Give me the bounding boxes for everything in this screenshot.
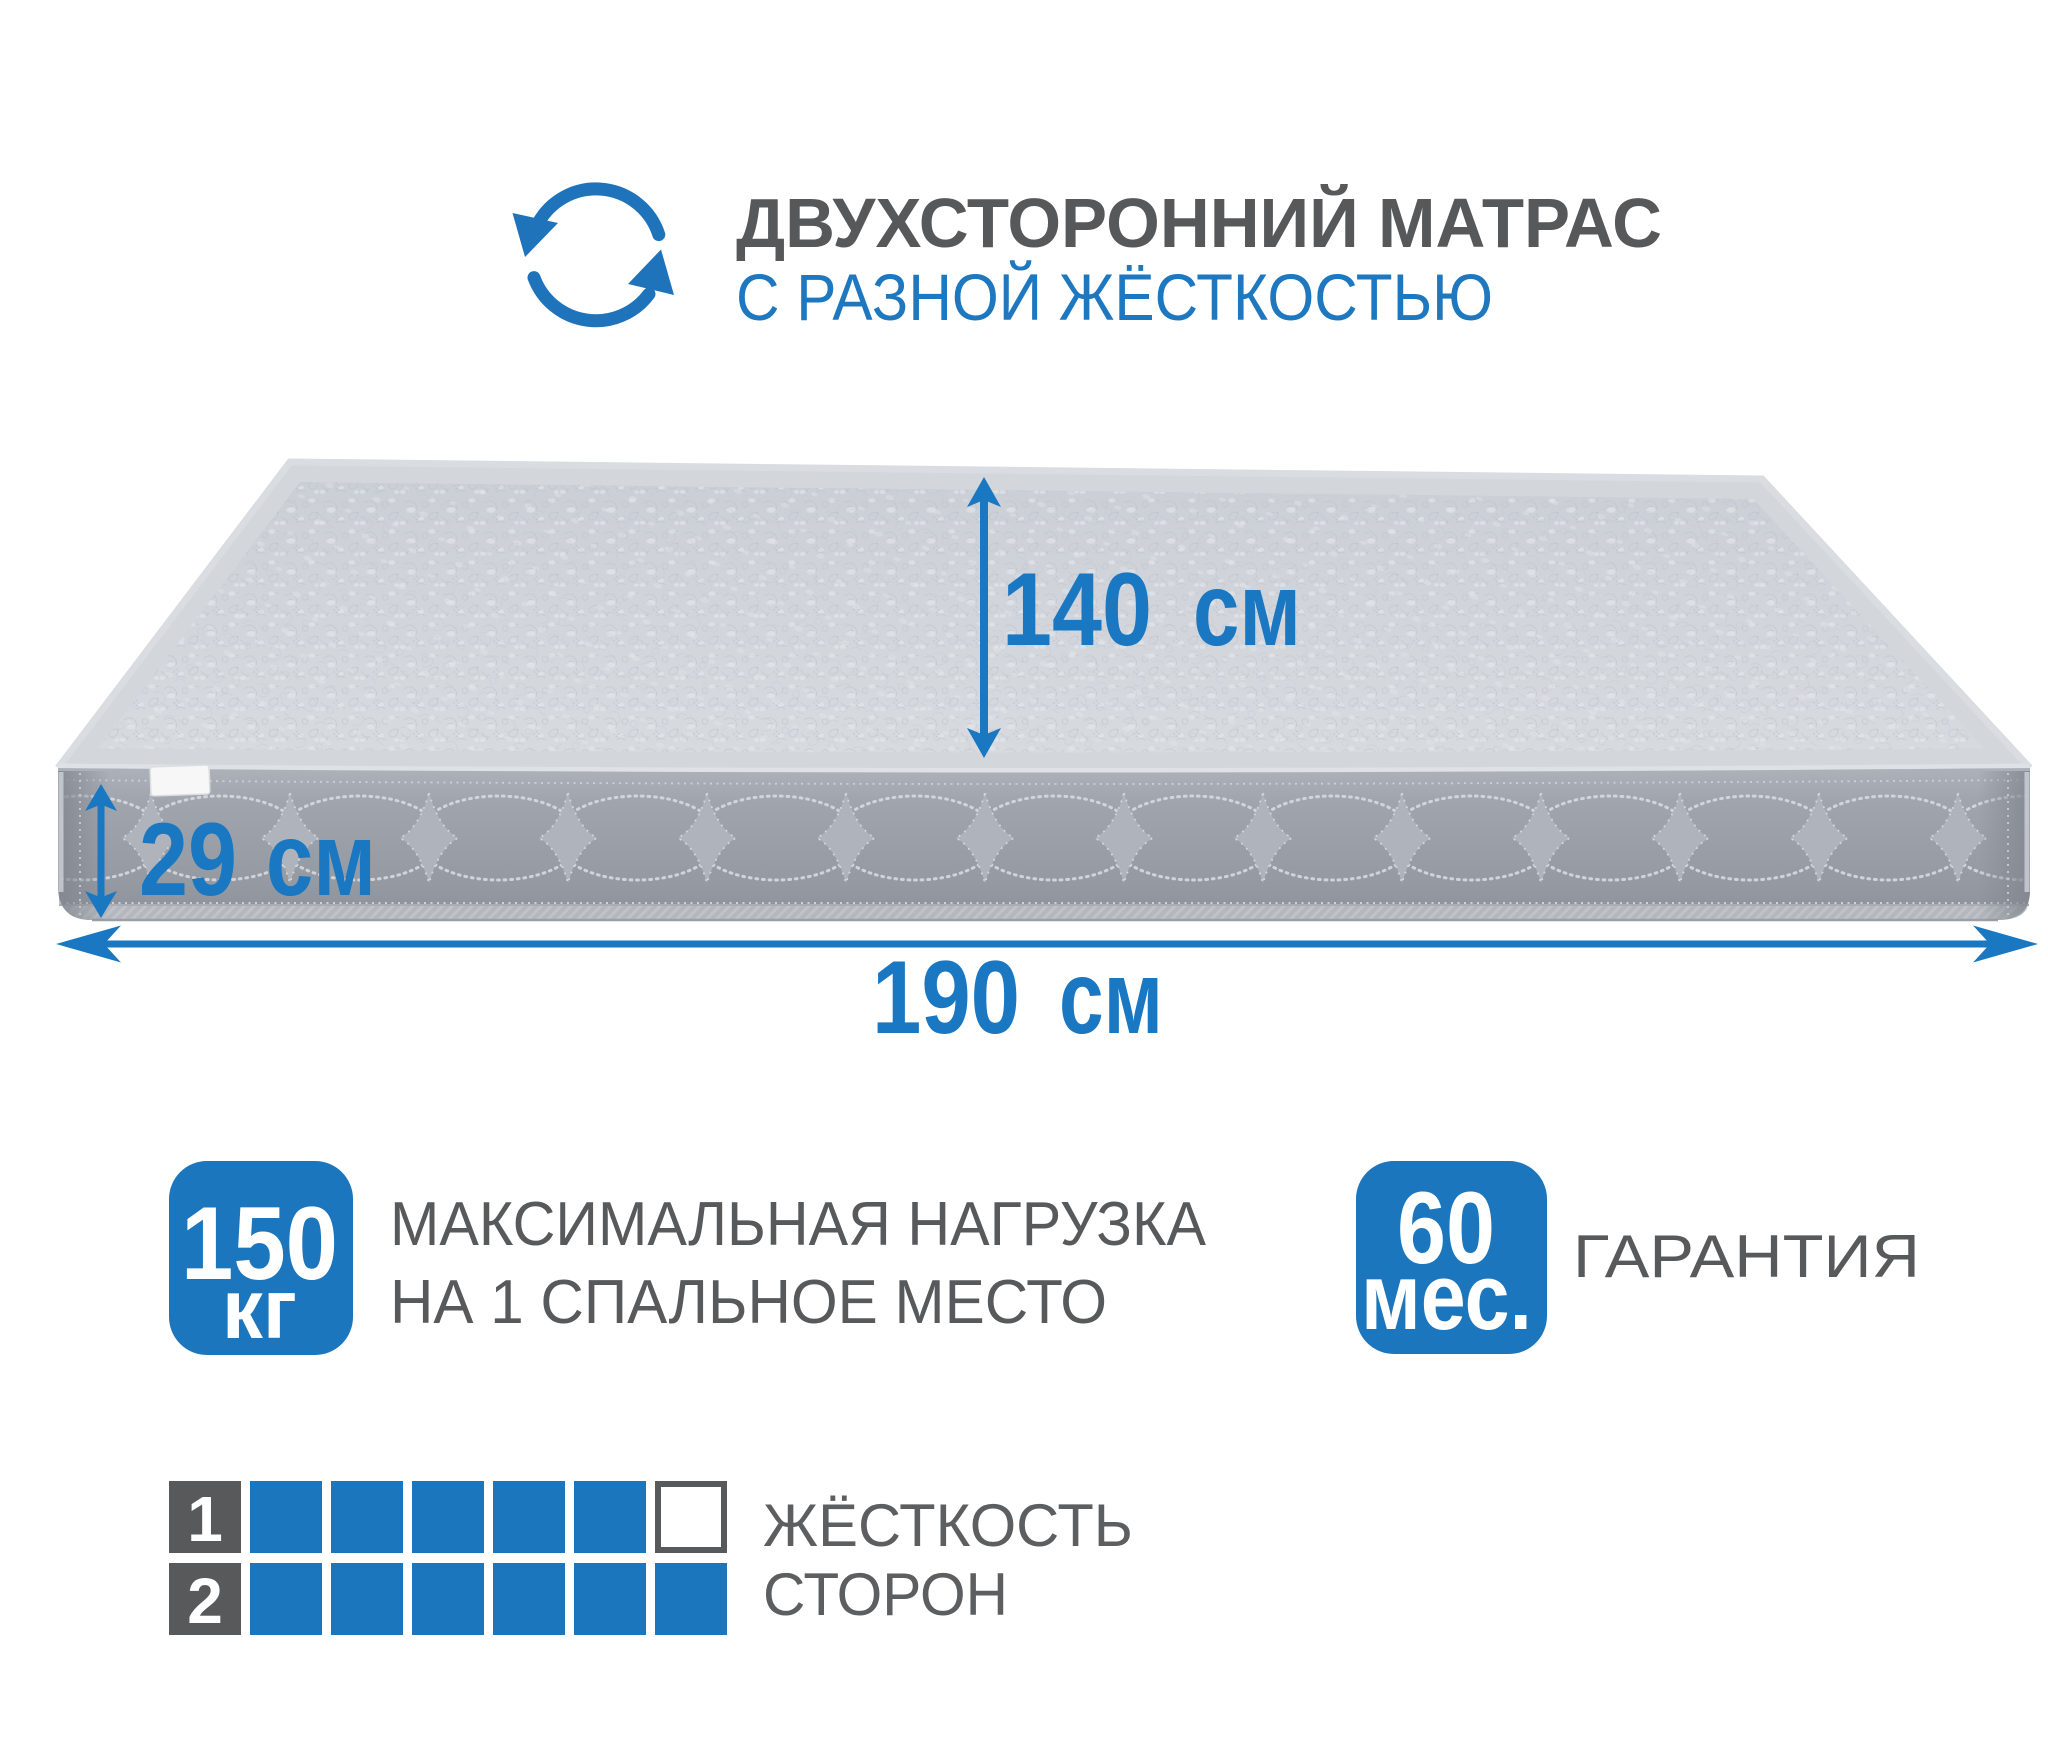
svg-text:кг: кг: [222, 1262, 297, 1356]
svg-text:29: 29: [139, 802, 237, 918]
svg-text:140: 140: [1002, 552, 1152, 668]
svg-text:ДВУХСТОРОННИЙ МАТРАС: ДВУХСТОРОННИЙ МАТРАС: [736, 183, 1662, 262]
svg-text:мес.: мес.: [1361, 1244, 1532, 1349]
svg-text:1: 1: [187, 1483, 223, 1555]
svg-text:С РАЗНОЙ ЖЁСТКОСТЬЮ: С РАЗНОЙ ЖЁСТКОСТЬЮ: [736, 259, 1493, 334]
svg-text:см: см: [266, 802, 376, 918]
svg-text:см: см: [1193, 552, 1301, 668]
svg-text:НА 1 СПАЛЬНОЕ МЕСТО: НА 1 СПАЛЬНОЕ МЕСТО: [390, 1268, 1107, 1337]
svg-text:МАКСИМАЛЬНАЯ НАГРУЗКА: МАКСИМАЛЬНАЯ НАГРУЗКА: [390, 1190, 1207, 1259]
svg-text:СТОРОН: СТОРОН: [763, 1561, 1008, 1628]
svg-text:190: 190: [872, 940, 1020, 1056]
svg-text:2: 2: [187, 1565, 223, 1637]
svg-text:ГАРАНТИЯ: ГАРАНТИЯ: [1573, 1223, 1920, 1290]
svg-text:см: см: [1059, 940, 1163, 1056]
svg-text:ЖЁСТКОСТЬ: ЖЁСТКОСТЬ: [763, 1492, 1133, 1559]
